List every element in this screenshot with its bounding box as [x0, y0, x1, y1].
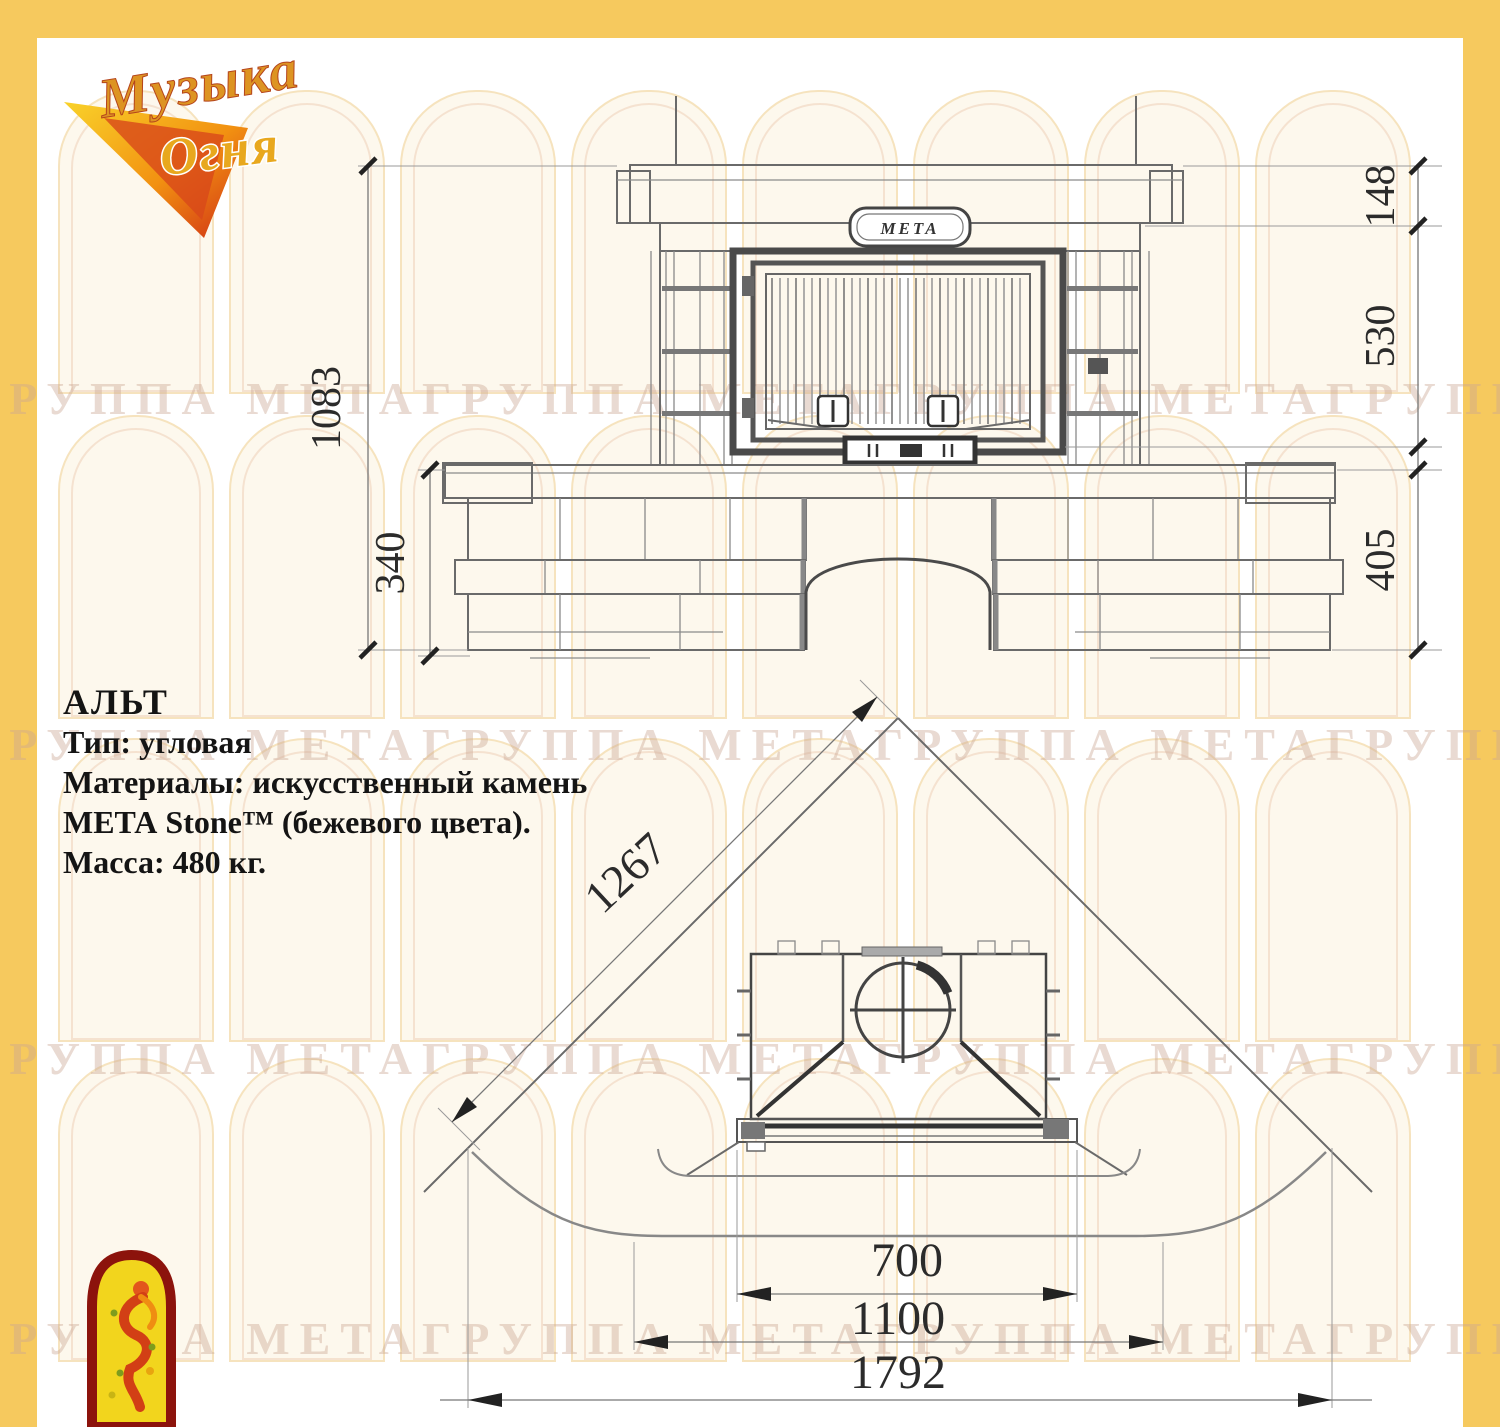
- spec-type: Тип: угловая: [63, 722, 587, 762]
- meta-badge-label: МЕТА: [879, 219, 939, 238]
- spec-mass: Масса: 480 кг.: [63, 842, 587, 882]
- dimension-firebox-width: 700: [737, 1150, 1077, 1302]
- dim-label-148: 148: [1358, 165, 1404, 228]
- firebox-casing-top-view: [687, 941, 1127, 1175]
- door-strip-top-view: [737, 1119, 1077, 1151]
- product-name: АЛЬТ: [63, 682, 587, 722]
- door-handle-right: [928, 396, 958, 426]
- firebox: [733, 251, 1108, 463]
- fireplace-front-view-drawing: МЕТА: [330, 80, 1450, 690]
- dim-label-1792: 1792: [850, 1346, 946, 1399]
- hearth-outer-edge: [472, 1152, 1326, 1236]
- right-pilaster: [1067, 251, 1138, 464]
- music-of-fire-logo: Музыка Огня: [52, 40, 332, 255]
- firebox-grill: [772, 278, 1020, 424]
- dimension-total-height: 1083: [304, 158, 617, 658]
- flue-circle: [850, 957, 956, 1063]
- dim-label-1267: 1267: [574, 823, 676, 923]
- dim-label-1100: 1100: [851, 1292, 945, 1345]
- hearth-inner-edge: [658, 1149, 1140, 1176]
- meta-badge: МЕТА: [850, 208, 970, 246]
- jester-flame-emblem: [84, 1243, 179, 1427]
- dim-label-340: 340: [368, 532, 414, 595]
- dim-label-700: 700: [871, 1234, 943, 1287]
- product-specs: АЛЬТ Тип: угловая Материалы: искусственн…: [63, 682, 587, 882]
- bench-stonework: [455, 498, 1343, 658]
- dim-label-405: 405: [1358, 529, 1404, 592]
- spec-material-2: МЕТА Stone™ (бежевого цвета).: [63, 802, 587, 842]
- wood-niche-arch: [806, 559, 990, 650]
- door-handle-left: [818, 396, 848, 426]
- dim-label-1083: 1083: [304, 366, 350, 450]
- spec-material-1: Материалы: искусственный камень: [63, 762, 587, 802]
- ash-vent: [845, 438, 975, 463]
- dim-label-530: 530: [1358, 305, 1404, 368]
- left-pilaster: [662, 251, 733, 464]
